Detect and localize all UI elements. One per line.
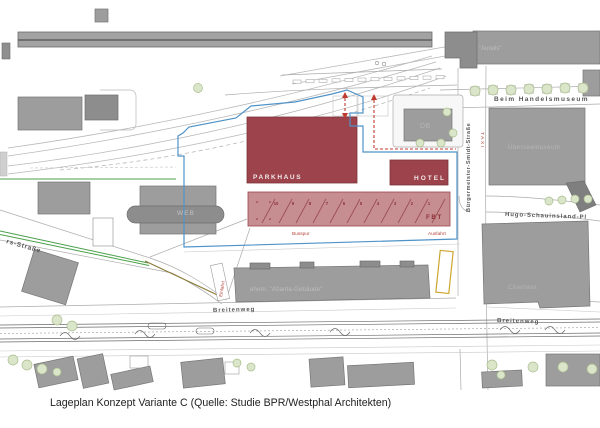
building-web bbox=[127, 186, 224, 234]
site-plan: PARKHAUS HOTEL FBT WEB DB "Aurelis" Über… bbox=[0, 0, 600, 428]
label-hugo-schauinsland: Hugo-Schauinsland-Pl bbox=[505, 212, 587, 221]
label-ausfahrt: Ausfahrt bbox=[428, 231, 447, 237]
bus-apron bbox=[248, 192, 450, 226]
caption: Lageplan Konzept Variante C (Quelle: Stu… bbox=[50, 397, 391, 409]
label-beim-handelsmuseum: Beim Handelsmuseum bbox=[494, 96, 589, 103]
building-atlanta bbox=[234, 261, 430, 302]
label-breitenweg-west: Breitenweg bbox=[213, 307, 255, 314]
railway-viaduct bbox=[0, 9, 432, 176]
label-smidt-strasse: Bürgermeister-Smidt-Straße bbox=[466, 123, 472, 212]
building-w-mid bbox=[38, 182, 90, 214]
building-nw-annex bbox=[85, 95, 118, 120]
label-hotel: HOTEL bbox=[414, 175, 446, 182]
building-sw bbox=[22, 249, 79, 305]
label-aurelis: "Aurelis" bbox=[479, 46, 502, 52]
building-n-small bbox=[445, 32, 477, 68]
label-cinemaxx: Cinemaxx bbox=[508, 284, 538, 291]
label-db: DB bbox=[420, 123, 431, 130]
bus-bay-number: 10 bbox=[274, 201, 279, 206]
label-atlanta: ehem. "Atlanta-Gebäude" bbox=[250, 287, 323, 293]
label-ueberseemuseum: Überseemuseum bbox=[508, 144, 560, 151]
db-area bbox=[393, 95, 463, 147]
structure-small bbox=[93, 218, 113, 246]
buildings-south bbox=[34, 354, 600, 390]
building-nw-long bbox=[18, 97, 82, 130]
label-taxi: TAXI bbox=[479, 132, 485, 149]
label-busspur: Busspur bbox=[292, 231, 310, 237]
label-fbt: FBT bbox=[426, 214, 443, 221]
building-cinemaxx bbox=[482, 221, 590, 308]
yellow-marker bbox=[436, 250, 453, 293]
label-web: WEB bbox=[177, 210, 195, 217]
site-plan-canvas: PARKHAUS HOTEL FBT WEB DB "Aurelis" Über… bbox=[0, 0, 600, 428]
label-breitenweg-east: Breitenweg bbox=[497, 318, 540, 325]
label-nw-strasse: rs-Straße bbox=[5, 238, 41, 255]
label-parkhaus: PARKHAUS bbox=[253, 174, 302, 181]
trees-handelsmuseum bbox=[470, 83, 588, 96]
